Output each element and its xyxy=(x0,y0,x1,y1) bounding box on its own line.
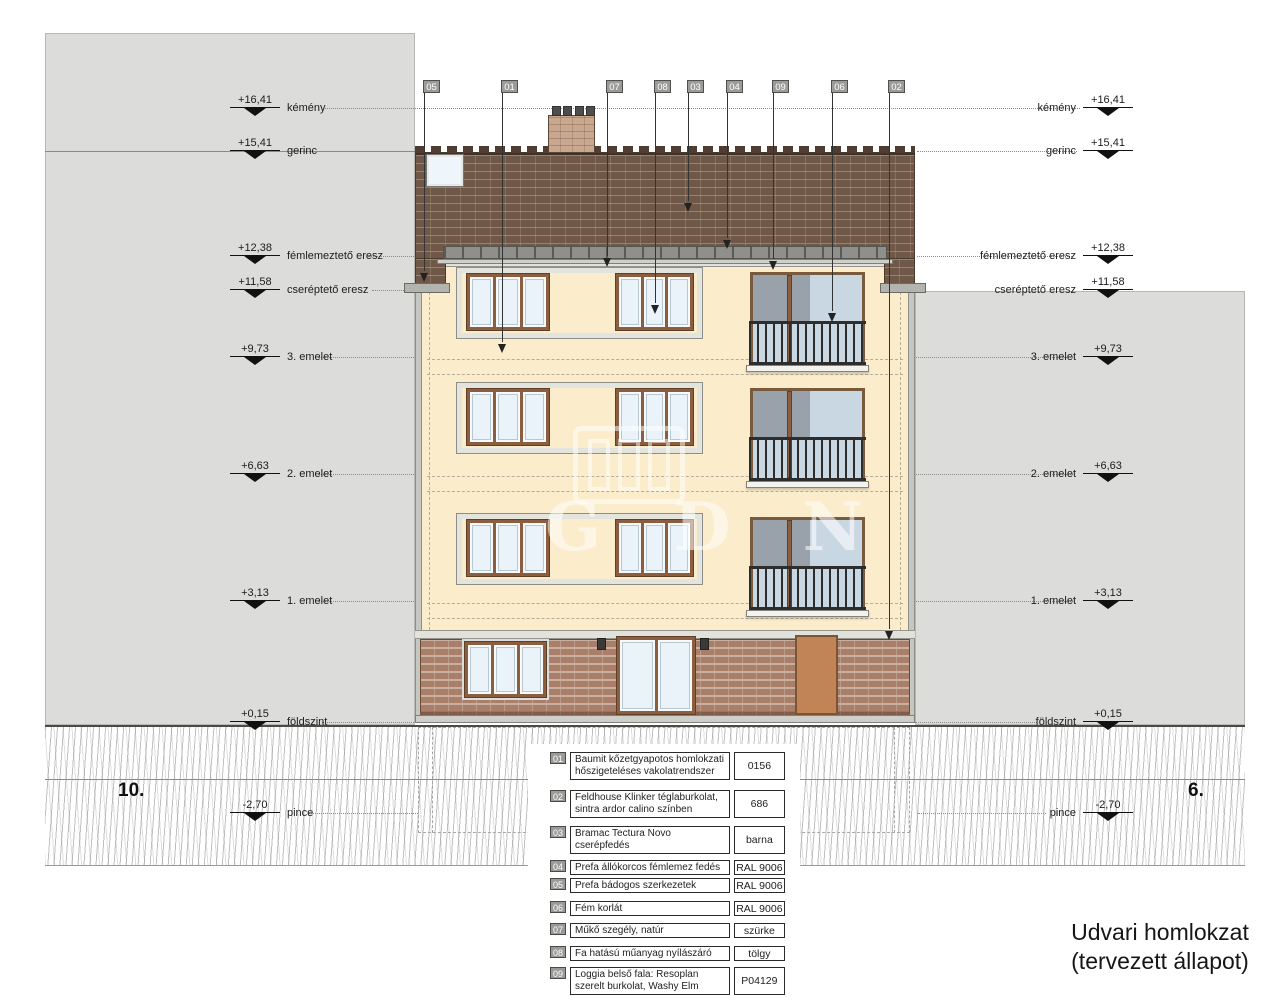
plinth xyxy=(415,715,915,723)
legend-value: barna xyxy=(734,826,785,854)
legend-chip: 08 xyxy=(550,946,566,958)
legend-desc: Prefa bádogos szerkezetek xyxy=(570,878,730,893)
level-label: pince xyxy=(1050,807,1076,819)
level-marker-em2-right: +6,63 2. emelet xyxy=(883,460,1133,482)
level-label: fémlemeztető eresz xyxy=(980,250,1076,262)
legend-desc: Loggia belső fala: Resoplan szerelt burk… xyxy=(570,967,730,995)
legend-value: RAL 9006 xyxy=(734,901,785,916)
legend-desc: Feldhouse Klinker téglaburkolat, sintra … xyxy=(570,790,730,818)
leader-em3-left xyxy=(318,357,418,358)
loggia-inner-wall xyxy=(753,520,810,569)
leader-em2-left xyxy=(318,474,418,475)
level-triangle-icon xyxy=(244,290,266,298)
door-pane xyxy=(620,640,655,711)
window-band-floor2 xyxy=(457,383,702,453)
callout-arrow xyxy=(498,344,506,353)
level-marker-foldszint-right: +0,15 földszint xyxy=(883,708,1133,730)
level-triangle-icon xyxy=(244,151,266,159)
window-pane xyxy=(619,392,641,442)
window-pane xyxy=(619,277,641,327)
loggia-floor3 xyxy=(750,272,865,365)
level-marker-em1-right: +3,13 1. emelet xyxy=(883,587,1133,609)
level-label: kémény xyxy=(287,102,326,114)
roof xyxy=(415,152,915,260)
window xyxy=(466,388,550,446)
callout-leader xyxy=(424,93,425,271)
level-value: +9,73 xyxy=(1083,343,1133,357)
level-label: gerinc xyxy=(287,145,317,157)
level-label: cseréptető eresz xyxy=(287,284,368,296)
legend-value: szürke xyxy=(734,923,785,938)
window-pane xyxy=(520,645,543,694)
window-pane xyxy=(523,277,546,327)
level-triangle-icon xyxy=(1097,151,1119,159)
level-value: +12,38 xyxy=(1083,242,1133,256)
window xyxy=(615,388,694,446)
level-marker-kemeny-left: +16,41 kémény xyxy=(230,94,326,116)
legend-chip: 05 xyxy=(550,878,566,890)
legend-value: 0156 xyxy=(734,752,785,780)
balcony-sill xyxy=(746,365,869,372)
callout-leader xyxy=(688,93,689,201)
level-value: +6,63 xyxy=(230,460,280,474)
entrance-door xyxy=(795,635,838,715)
window-pane xyxy=(523,392,546,442)
level-value: +12,38 xyxy=(230,242,280,256)
elevation-drawing: GDN 05 01 07 08 03 04 09 06 02 +16,41 ké… xyxy=(0,0,1280,1005)
legend-chip: 07 xyxy=(550,923,566,935)
plot-number-right: 6. xyxy=(1188,780,1204,802)
chimney xyxy=(548,115,595,153)
drawing-title-line1: Udvari homlokzat xyxy=(1060,918,1260,947)
level-value: +3,13 xyxy=(1083,587,1133,601)
callout-flag: 07 xyxy=(606,80,623,93)
level-marker-femlemez-left: +12,38 fémlemeztető eresz xyxy=(230,242,383,264)
legend-row: 05 Prefa bádogos szerkezetek RAL 9006 xyxy=(570,878,785,893)
level-triangle-icon xyxy=(1097,256,1119,264)
legend-desc: Prefa állókorcos fémlemez fedés xyxy=(570,860,730,875)
callout-leader xyxy=(502,93,503,342)
level-value: +15,41 xyxy=(230,137,280,151)
legend-row: 02 Feldhouse Klinker téglaburkolat, sint… xyxy=(570,790,785,818)
level-value: +15,41 xyxy=(1083,137,1133,151)
loggia-inner-wall xyxy=(753,391,810,440)
wall-dash-right xyxy=(900,267,901,630)
level-value: +0,15 xyxy=(1083,708,1133,722)
gutter-cap-left xyxy=(404,283,450,293)
level-value: -2,70 xyxy=(1083,799,1133,813)
callout-arrow xyxy=(651,305,659,314)
level-triangle-icon xyxy=(1097,474,1119,482)
callout-flag: 09 xyxy=(772,80,789,93)
window-pane xyxy=(668,523,690,573)
level-marker-em3-right: +9,73 3. emelet xyxy=(883,343,1133,365)
window-pane xyxy=(470,523,493,573)
level-triangle-icon xyxy=(1097,108,1119,116)
level-label: 1. emelet xyxy=(287,595,332,607)
callout-leader xyxy=(832,93,833,311)
legend-row: 04 Prefa állókorcos fémlemez fedés RAL 9… xyxy=(570,860,785,875)
chimney-pot xyxy=(563,106,572,116)
leader-pince-left xyxy=(308,813,418,814)
roof-window xyxy=(427,155,463,186)
window-pane xyxy=(668,277,690,327)
legend-row: 06 Fém korlát RAL 9006 xyxy=(570,901,785,916)
roof-ridge-tiles xyxy=(415,146,915,155)
level-triangle-icon xyxy=(1097,813,1119,821)
callout-flag: 08 xyxy=(654,80,671,93)
window-pane xyxy=(644,392,666,442)
level-triangle-icon xyxy=(244,722,266,730)
callout-flag: 01 xyxy=(501,80,518,93)
level-label: pince xyxy=(287,807,313,819)
level-marker-gerinc-left: +15,41 gerinc xyxy=(230,137,317,159)
wall-lamp-icon xyxy=(700,638,709,650)
level-marker-femlemez-right: +12,38 fémlemeztető eresz xyxy=(883,242,1133,264)
slab-dash xyxy=(427,491,903,492)
level-triangle-icon xyxy=(244,474,266,482)
window-pane xyxy=(619,523,641,573)
balcony-sill xyxy=(746,610,869,617)
level-value: -2,70 xyxy=(230,799,280,813)
callout-arrow xyxy=(684,203,692,212)
legend-desc: Műkő szegély, natúr xyxy=(570,923,730,938)
legend-row: 01 Baumit kőzetgyapotos homlokzati hőszi… xyxy=(570,752,785,780)
level-value: +3,13 xyxy=(230,587,280,601)
loggia-floor2 xyxy=(750,388,865,481)
window xyxy=(466,519,550,577)
window-pane xyxy=(496,523,519,573)
level-marker-cserep-right: +11,58 cseréptető eresz xyxy=(883,276,1133,298)
legend-value: tölgy xyxy=(734,946,785,961)
level-value: +16,41 xyxy=(230,94,280,108)
loggia-inner-wall xyxy=(753,275,810,324)
legend-row: 08 Fa hatású műanyag nyílászáró tölgy xyxy=(570,946,785,961)
level-label: 3. emelet xyxy=(287,351,332,363)
level-triangle-icon xyxy=(1097,290,1119,298)
level-label: földszint xyxy=(1036,716,1076,728)
legend-chip: 03 xyxy=(550,826,566,838)
ground-window xyxy=(464,641,547,698)
legend-chip: 04 xyxy=(550,860,566,872)
legend-chip: 09 xyxy=(550,967,566,979)
plot-number-left: 10. xyxy=(118,780,144,802)
level-marker-foldszint-left: +0,15 földszint xyxy=(230,708,327,730)
level-label: cseréptető eresz xyxy=(995,284,1076,296)
level-marker-cserep-left: +11,58 cseréptető eresz xyxy=(230,276,368,298)
slab-dash xyxy=(427,618,903,619)
level-marker-pince-right: -2,70 pince xyxy=(883,799,1133,821)
callout-arrow xyxy=(723,240,731,249)
loggia-floor1 xyxy=(750,517,865,610)
ground-glazed-door xyxy=(616,636,696,715)
callout-flag: 03 xyxy=(687,80,704,93)
balcony-railing xyxy=(749,437,866,481)
level-value: +11,58 xyxy=(1083,276,1133,290)
legend-row: 03 Bramac Tectura Novo cserépfedés barna xyxy=(570,826,785,854)
basement-wall-dash xyxy=(432,727,433,833)
legend-value: P04129 xyxy=(734,967,785,995)
legend-desc: Fém korlát xyxy=(570,901,730,916)
window xyxy=(615,519,694,577)
level-triangle-icon xyxy=(1097,722,1119,730)
level-label: 2. emelet xyxy=(287,468,332,480)
balcony-railing xyxy=(749,566,866,610)
legend-desc: Bramac Tectura Novo cserépfedés xyxy=(570,826,730,854)
legend-row: 07 Műkő szegély, natúr szürke xyxy=(570,923,785,938)
callout-flag: 05 xyxy=(423,80,440,93)
level-triangle-icon xyxy=(244,813,266,821)
level-marker-pince-left: -2,70 pince xyxy=(230,799,313,821)
window-pane xyxy=(644,523,666,573)
callout-arrow xyxy=(828,313,836,322)
callout-leader xyxy=(655,93,656,303)
level-triangle-icon xyxy=(1097,601,1119,609)
level-label: földszint xyxy=(287,716,327,728)
legend-row: 09 Loggia belső fala: Resoplan szerelt b… xyxy=(570,967,785,995)
leader-foldszint-left xyxy=(322,722,414,723)
callout-arrow xyxy=(769,261,777,270)
window-pane xyxy=(470,392,493,442)
callout-arrow xyxy=(420,273,428,282)
level-label: 2. emelet xyxy=(1031,468,1076,480)
window-band-floor1 xyxy=(457,514,702,584)
door-pane xyxy=(658,640,693,711)
callout-flag: 02 xyxy=(888,80,905,93)
level-value: +11,58 xyxy=(230,276,280,290)
window-band-floor3 xyxy=(457,268,702,338)
level-label: fémlemeztető eresz xyxy=(287,250,383,262)
window-pane xyxy=(668,392,690,442)
slab-dash xyxy=(427,374,903,375)
eaves-ledge xyxy=(437,259,893,264)
level-marker-em3-left: +9,73 3. emelet xyxy=(230,343,332,365)
leader-em1-left xyxy=(318,601,418,602)
level-label: gerinc xyxy=(1046,145,1076,157)
level-value: +16,41 xyxy=(1083,94,1133,108)
level-triangle-icon xyxy=(244,357,266,365)
balcony-sill xyxy=(746,481,869,488)
level-label: 3. emelet xyxy=(1031,351,1076,363)
wall-dash-left xyxy=(429,267,430,630)
callout-arrow xyxy=(885,631,893,640)
level-value: +9,73 xyxy=(230,343,280,357)
legend-value: RAL 9006 xyxy=(734,878,785,893)
callout-arrow xyxy=(603,258,611,267)
drawing-title: Udvari homlokzat (tervezett állapot) xyxy=(1060,918,1260,976)
legend-chip: 06 xyxy=(550,901,566,913)
level-triangle-icon xyxy=(244,256,266,264)
level-marker-kemeny-right: +16,41 kémény xyxy=(883,94,1133,116)
callout-leader xyxy=(607,93,608,256)
level-label: 1. emelet xyxy=(1031,595,1076,607)
callout-flag: 06 xyxy=(831,80,848,93)
window-pane xyxy=(523,523,546,573)
legend-value: RAL 9006 xyxy=(734,860,785,875)
chimney-pot xyxy=(586,106,595,116)
window-pane xyxy=(470,277,493,327)
callout-leader xyxy=(727,93,728,238)
legend-value: 686 xyxy=(734,790,785,818)
legend-chip: 02 xyxy=(550,790,566,802)
window xyxy=(466,273,550,331)
window-pane xyxy=(494,645,517,694)
chimney-pot xyxy=(552,106,561,116)
level-value: +0,15 xyxy=(230,708,280,722)
window-pane xyxy=(496,277,519,327)
wall-lamp-icon xyxy=(597,638,606,650)
legend-desc: Fa hatású műanyag nyílászáró xyxy=(570,946,730,961)
level-triangle-icon xyxy=(1097,357,1119,365)
level-label: kémény xyxy=(1037,102,1076,114)
level-marker-em2-left: +6,63 2. emelet xyxy=(230,460,332,482)
window-pane xyxy=(496,392,519,442)
callout-flag: 04 xyxy=(726,80,743,93)
window-pane xyxy=(468,645,491,694)
level-triangle-icon xyxy=(244,108,266,116)
level-value: +6,63 xyxy=(1083,460,1133,474)
balcony-railing xyxy=(749,321,866,365)
level-marker-gerinc-right: +15,41 gerinc xyxy=(883,137,1133,159)
level-marker-em1-left: +3,13 1. emelet xyxy=(230,587,332,609)
legend-desc: Baumit kőzetgyapotos homlokzati hősziget… xyxy=(570,752,730,780)
level-triangle-icon xyxy=(244,601,266,609)
legend-chip: 01 xyxy=(550,752,566,764)
drawing-title-line2: (tervezett állapot) xyxy=(1060,947,1260,976)
callout-leader xyxy=(773,93,774,259)
snow-guard xyxy=(443,246,887,259)
chimney-pot xyxy=(575,106,584,116)
